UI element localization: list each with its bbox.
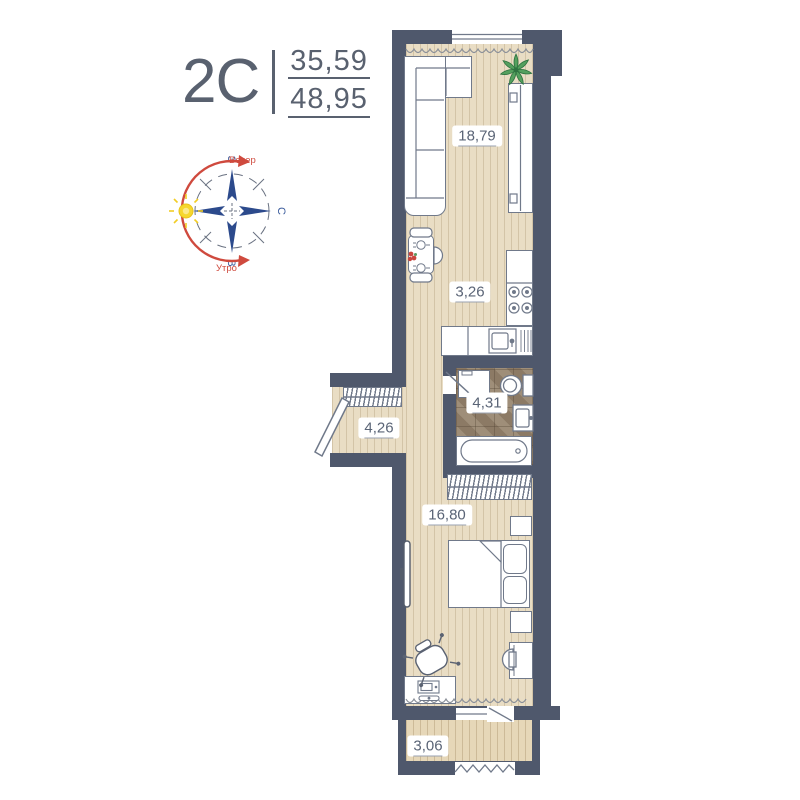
corridor-floor [406, 356, 443, 478]
wall-balcony-right [532, 720, 540, 775]
area-values: 35,59 48,95 [288, 46, 370, 118]
area-living-value: 35,59 [288, 46, 370, 79]
morning-label: Утро [216, 263, 237, 274]
apartment-type: 2C [182, 51, 259, 113]
wall-bathroom-top [443, 356, 551, 368]
compass-rose: З С В Вечер Утро [170, 146, 294, 278]
bedroom-window [456, 708, 487, 720]
desk-right [509, 642, 533, 679]
balcony-glazing [455, 762, 515, 775]
wardrobe [508, 83, 533, 213]
compass-dir-north: С [275, 207, 287, 215]
nightstand-top [510, 516, 532, 536]
dining-table [408, 235, 434, 274]
nightstand-bottom [510, 611, 532, 633]
title-divider [272, 50, 275, 114]
bathtub [456, 436, 532, 466]
living-window [452, 30, 522, 44]
pillow-2 [503, 576, 527, 604]
room-label-kitchen: 3,26 [449, 282, 490, 303]
apartment-title-block: 2C 35,59 48,95 [182, 46, 370, 118]
wall-right [533, 30, 551, 720]
pillow-1 [503, 544, 527, 574]
kitchen-tall-unit [506, 250, 533, 326]
sofa-chaise [404, 56, 446, 216]
hallway-coat-rack [343, 387, 402, 407]
floorplan-page: 2C 35,59 48,95 З С В [0, 0, 800, 800]
room-label-bedroom: 16,80 [422, 505, 472, 526]
balcony-door [487, 706, 514, 722]
room-label-hallway: 4,26 [358, 418, 399, 439]
arc-arrow-bottom [238, 255, 250, 267]
desk [404, 676, 456, 704]
wall-hallway-top [330, 373, 406, 387]
room-label-balcony: 3,06 [407, 736, 448, 757]
bedroom-wardrobe-rack [447, 474, 532, 500]
room-label-bathroom: 4,31 [466, 393, 507, 414]
kitchen-counter [441, 326, 533, 356]
area-total-value: 48,95 [288, 84, 370, 117]
room-label-living: 18,79 [452, 126, 502, 147]
evening-label: Вечер [229, 155, 256, 166]
